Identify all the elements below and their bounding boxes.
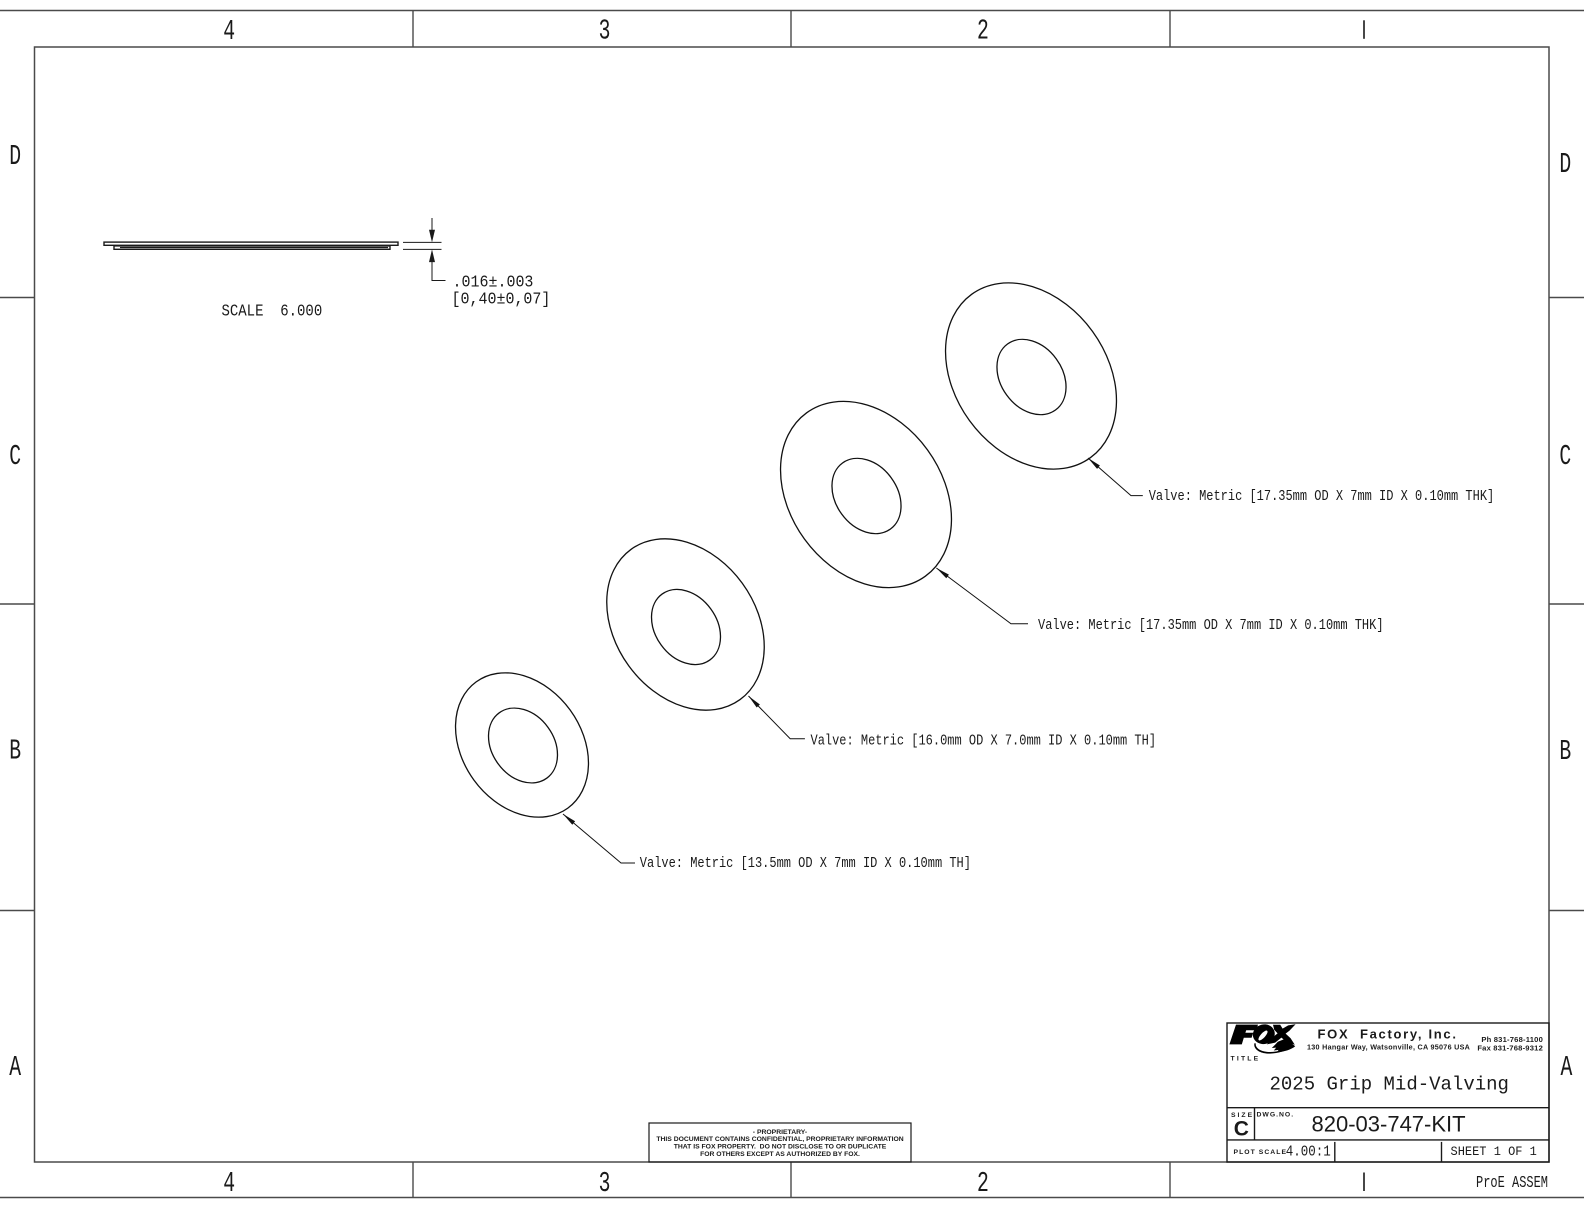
- svg-text:3: 3: [599, 1168, 611, 1201]
- svg-text:DWG.NO.: DWG.NO.: [1257, 1112, 1295, 1119]
- svg-text:Valve: Metric [17.35mm OD X 7m: Valve: Metric [17.35mm OD X 7mm ID X 0.1…: [1038, 618, 1384, 635]
- svg-text:2: 2: [977, 1168, 989, 1201]
- svg-text:2: 2: [977, 15, 989, 48]
- svg-text:C: C: [1559, 441, 1571, 474]
- svg-text:PLOT SCALE: PLOT SCALE: [1234, 1149, 1288, 1156]
- svg-text:SHEET 1 OF 1: SHEET 1 OF 1: [1451, 1145, 1537, 1160]
- svg-text:TITLE: TITLE: [1231, 1056, 1261, 1063]
- svg-text:4: 4: [223, 1168, 235, 1201]
- svg-text:.016±.003: .016±.003: [453, 273, 534, 292]
- svg-text:Valve: Metric [13.5mm OD X 7mm: Valve: Metric [13.5mm OD X 7mm ID X 0.10…: [640, 856, 971, 873]
- svg-text:C: C: [1234, 1117, 1249, 1140]
- svg-text:D: D: [1559, 149, 1571, 182]
- svg-text:Fax 831-768-9312: Fax 831-768-9312: [1477, 1043, 1543, 1052]
- svg-text:THIS DOCUMENT CONTAINS CONFIDE: THIS DOCUMENT CONTAINS CONFIDENTIAL, PRO…: [656, 1136, 903, 1143]
- svg-text:3: 3: [599, 15, 611, 48]
- svg-text:B: B: [9, 735, 21, 768]
- svg-text:Valve: Metric [16.0mm OD X 7.0: Valve: Metric [16.0mm OD X 7.0mm ID X 0.…: [811, 734, 1157, 751]
- svg-text:4: 4: [223, 15, 235, 48]
- svg-text:A: A: [1561, 1051, 1573, 1084]
- svg-text:[0,40±0,07]: [0,40±0,07]: [452, 290, 551, 309]
- svg-text:D: D: [9, 141, 21, 174]
- svg-text:2025 Grip Mid-Valving: 2025 Grip Mid-Valving: [1270, 1073, 1509, 1095]
- svg-text:ProE ASSEM: ProE ASSEM: [1476, 1175, 1548, 1193]
- svg-text:THAT IS FOX PROPERTY. DO NOT: THAT IS FOX PROPERTY. DO NOT DISCLOSE TO…: [674, 1144, 887, 1151]
- svg-text:C: C: [9, 441, 21, 474]
- svg-text:A: A: [9, 1051, 21, 1084]
- svg-text:FOX Factory, Inc.: FOX Factory, Inc.: [1318, 1026, 1458, 1041]
- svg-text:- PROPRIETARY-: - PROPRIETARY-: [753, 1129, 807, 1136]
- svg-text:820-03-747-KIT: 820-03-747-KIT: [1312, 1111, 1466, 1136]
- svg-text:130 Hangar Way, Watsonville, C: 130 Hangar Way, Watsonville, CA 95076 US…: [1307, 1042, 1470, 1051]
- svg-text:SCALE 6.000: SCALE 6.000: [222, 301, 323, 320]
- svg-text:Valve: Metric [17.35mm OD X 7m: Valve: Metric [17.35mm OD X 7mm ID X 0.1…: [1149, 489, 1495, 506]
- svg-text:4.00:1: 4.00:1: [1286, 1145, 1331, 1161]
- svg-text:FOR OTHERS EXCEPT AS AUTHORIZE: FOR OTHERS EXCEPT AS AUTHORIZED BY FOX.: [700, 1151, 860, 1158]
- svg-text:B: B: [1559, 736, 1571, 769]
